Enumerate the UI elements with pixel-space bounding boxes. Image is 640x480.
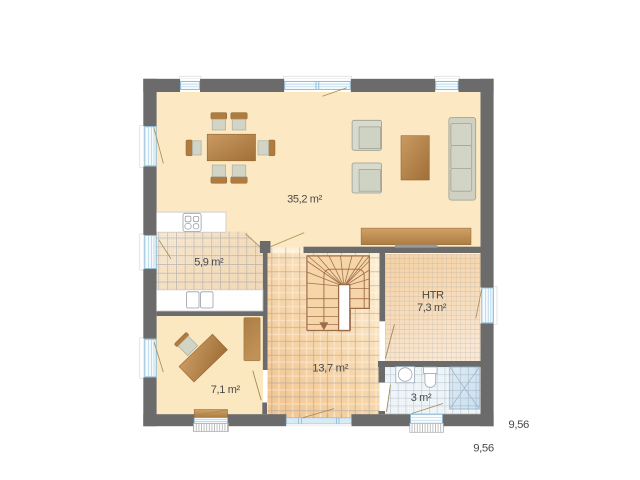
svg-text:7,1 m²: 7,1 m² bbox=[211, 384, 241, 396]
svg-text:9,56: 9,56 bbox=[508, 419, 529, 431]
svg-text:5,9 m²: 5,9 m² bbox=[194, 256, 224, 268]
svg-text:7,3 m²: 7,3 m² bbox=[417, 302, 447, 314]
svg-text:9,56: 9,56 bbox=[473, 442, 494, 454]
svg-text:HTR: HTR bbox=[422, 289, 444, 301]
svg-text:35,2 m²: 35,2 m² bbox=[287, 193, 323, 205]
svg-text:3 m²: 3 m² bbox=[411, 392, 432, 404]
svg-text:13,7 m²: 13,7 m² bbox=[312, 363, 348, 375]
